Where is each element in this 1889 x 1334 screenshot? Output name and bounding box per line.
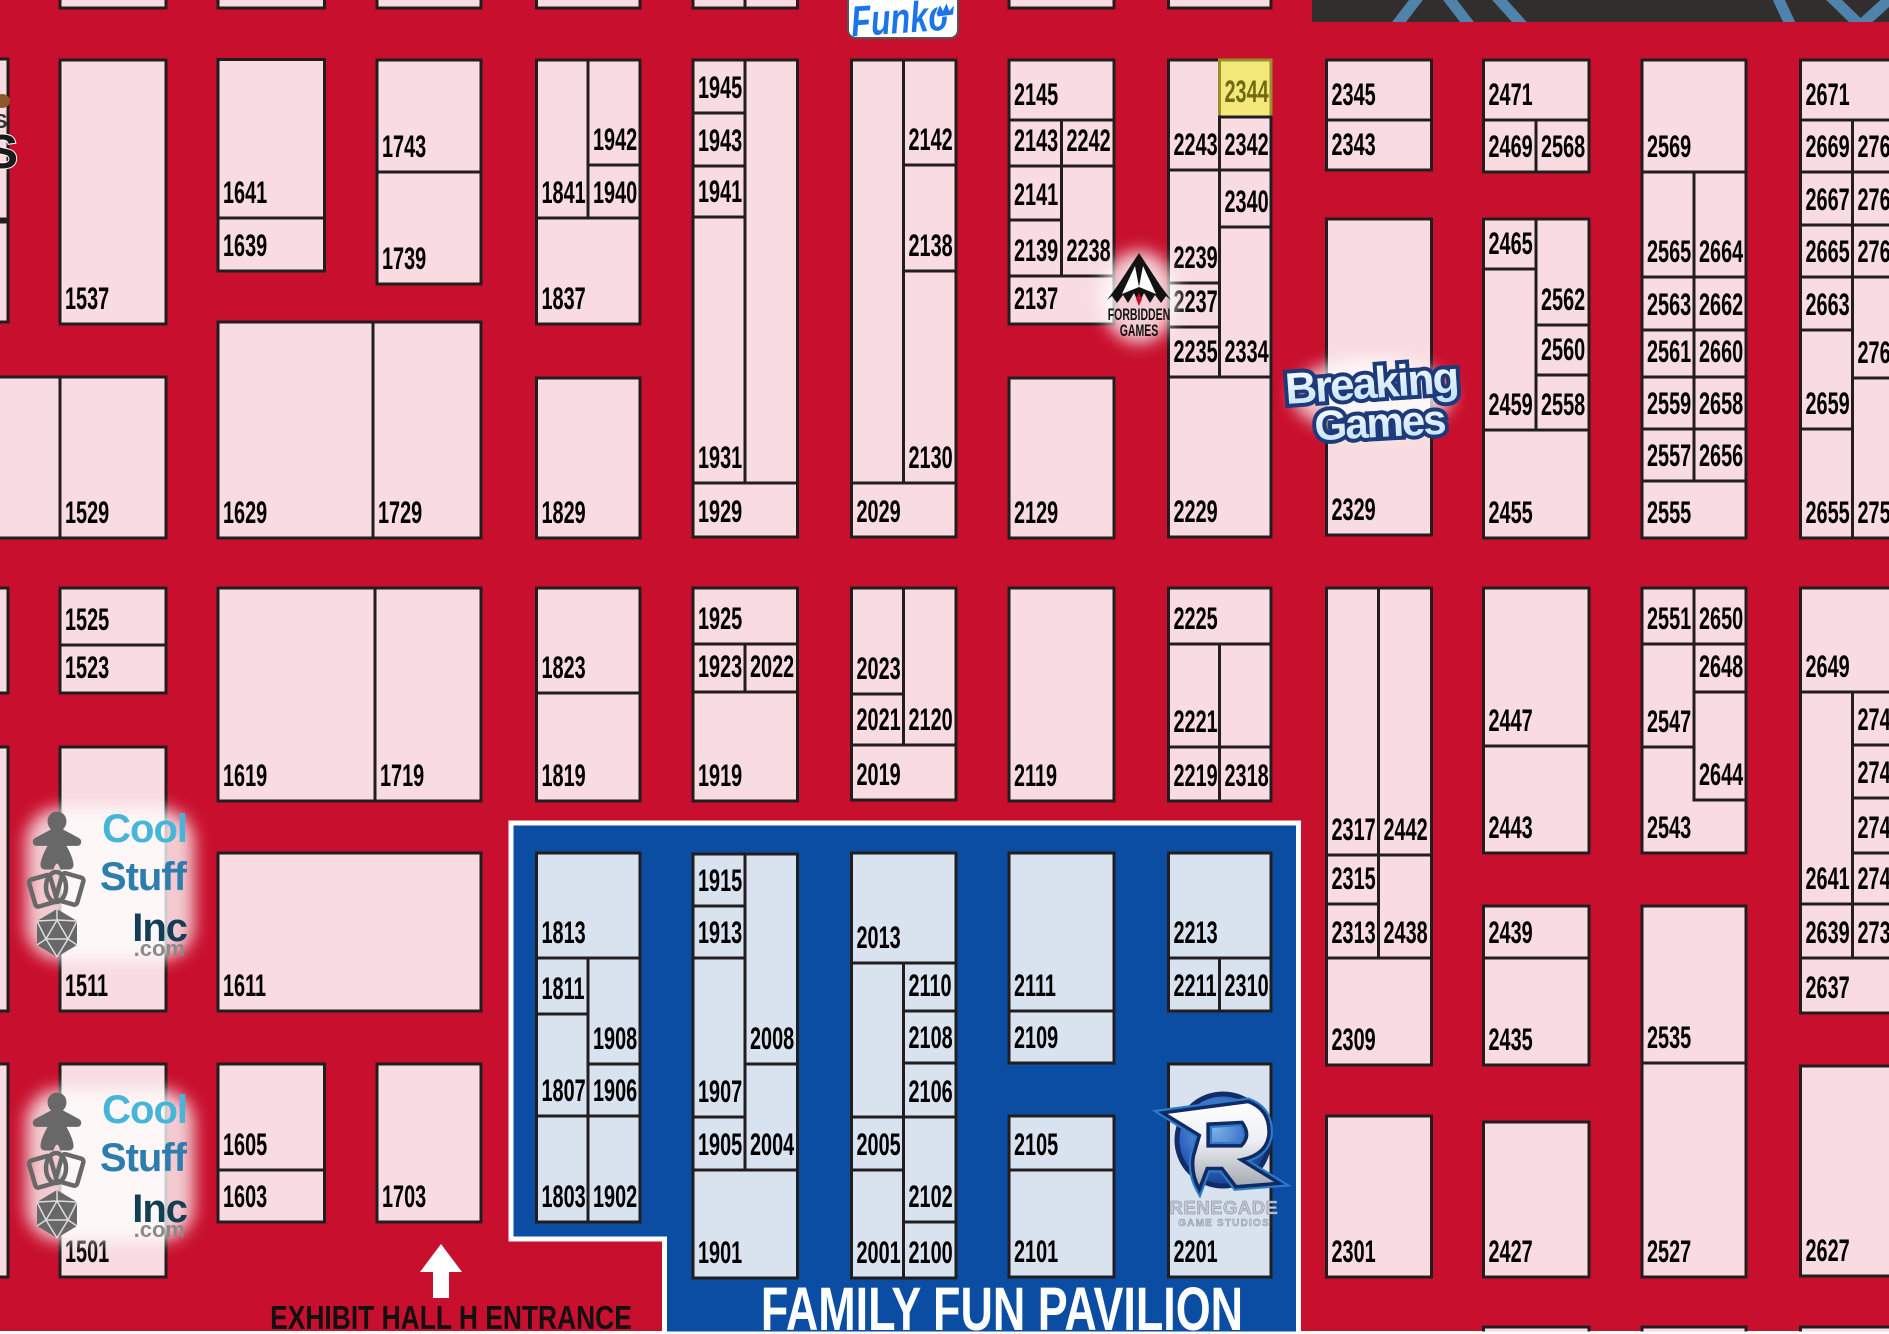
- svg-text:1629: 1629: [223, 494, 267, 530]
- svg-text:2746: 2746: [1858, 754, 1889, 790]
- svg-text:2013: 2013: [857, 919, 901, 955]
- svg-text:1829: 1829: [542, 494, 586, 530]
- svg-text:1523: 1523: [65, 649, 109, 685]
- svg-text:2138: 2138: [909, 227, 953, 263]
- svg-text:GAMES: GAMES: [1120, 320, 1159, 339]
- svg-text:2568: 2568: [1541, 128, 1585, 164]
- svg-text:FAMILY FUN PAVILION: FAMILY FUN PAVILION: [761, 1276, 1243, 1334]
- svg-text:2742: 2742: [1858, 860, 1889, 896]
- svg-text:1841: 1841: [542, 174, 586, 210]
- svg-text:2219: 2219: [1174, 757, 1218, 793]
- svg-text:2655: 2655: [1806, 494, 1850, 530]
- svg-text:2129: 2129: [1014, 494, 1058, 530]
- svg-text:2667: 2667: [1806, 181, 1850, 217]
- svg-text:1529: 1529: [65, 494, 109, 530]
- svg-text:2665: 2665: [1806, 233, 1850, 269]
- svg-text:RENEGADE: RENEGADE: [1170, 1197, 1279, 1218]
- svg-text:2560: 2560: [1541, 331, 1585, 367]
- svg-text:2318: 2318: [1225, 757, 1269, 793]
- svg-text:1941: 1941: [698, 173, 742, 209]
- svg-text:1902: 1902: [593, 1178, 637, 1214]
- svg-text:2658: 2658: [1699, 385, 1743, 421]
- svg-text:2108: 2108: [909, 1019, 953, 1055]
- svg-text:2243: 2243: [1174, 126, 1218, 162]
- svg-text:2201: 2201: [1174, 1233, 1218, 1269]
- svg-text:2313: 2313: [1332, 914, 1376, 950]
- svg-text:2663: 2663: [1806, 286, 1850, 322]
- svg-text:1641: 1641: [223, 174, 267, 210]
- svg-text:1942: 1942: [593, 121, 637, 157]
- svg-text:1729: 1729: [378, 494, 422, 530]
- svg-text:2221: 2221: [1174, 703, 1218, 739]
- svg-text:1639: 1639: [223, 227, 267, 263]
- svg-text:2744: 2744: [1858, 809, 1889, 845]
- svg-text:1803: 1803: [542, 1178, 586, 1214]
- svg-text:Stuff: Stuff: [100, 1136, 188, 1180]
- svg-text:2242: 2242: [1067, 122, 1111, 158]
- svg-text:2547: 2547: [1647, 703, 1691, 739]
- svg-text:2309: 2309: [1332, 1021, 1376, 1057]
- svg-text:2669: 2669: [1806, 128, 1850, 164]
- svg-text:2764: 2764: [1858, 233, 1889, 269]
- svg-text:2019: 2019: [857, 756, 901, 792]
- svg-text:1823: 1823: [542, 649, 586, 685]
- svg-text:2465: 2465: [1489, 225, 1533, 261]
- svg-text:2558: 2558: [1541, 386, 1585, 422]
- svg-text:2022: 2022: [750, 648, 794, 684]
- svg-text:1923: 1923: [698, 648, 742, 684]
- svg-text:1603: 1603: [223, 1178, 267, 1214]
- svg-text:2762: 2762: [1858, 334, 1889, 370]
- svg-text:1743: 1743: [382, 128, 426, 164]
- svg-text:2627: 2627: [1806, 1232, 1850, 1268]
- svg-text:2340: 2340: [1225, 183, 1269, 219]
- svg-text:2469: 2469: [1489, 128, 1533, 164]
- svg-text:2455: 2455: [1489, 494, 1533, 530]
- svg-text:2143: 2143: [1014, 122, 1058, 158]
- svg-text:1719: 1719: [380, 757, 424, 793]
- svg-text:1905: 1905: [698, 1126, 742, 1162]
- svg-text:1511: 1511: [65, 967, 108, 1003]
- svg-text:2527: 2527: [1647, 1233, 1691, 1269]
- svg-text:2660: 2660: [1699, 333, 1743, 369]
- svg-text:2563: 2563: [1647, 286, 1691, 322]
- svg-text:2569: 2569: [1647, 128, 1691, 164]
- svg-text:1811: 1811: [542, 970, 585, 1006]
- svg-text:2023: 2023: [857, 650, 901, 686]
- svg-text:1837: 1837: [542, 280, 586, 316]
- svg-text:2641: 2641: [1806, 860, 1850, 896]
- svg-text:2119: 2119: [1014, 757, 1057, 793]
- svg-text:2106: 2106: [909, 1073, 953, 1109]
- svg-text:2334: 2334: [1225, 333, 1269, 369]
- svg-text:1611: 1611: [223, 967, 266, 1003]
- svg-text:1919: 1919: [698, 757, 742, 793]
- svg-text:1929: 1929: [698, 493, 742, 529]
- svg-text:2435: 2435: [1489, 1021, 1533, 1057]
- svg-text:2111: 2111: [1014, 967, 1056, 1003]
- svg-text:1925: 1925: [698, 600, 742, 636]
- svg-text:2648: 2648: [1699, 648, 1743, 684]
- svg-text:2639: 2639: [1806, 914, 1850, 950]
- svg-text:1525: 1525: [65, 601, 109, 637]
- svg-text:1908: 1908: [593, 1020, 637, 1056]
- svg-text:2029: 2029: [857, 493, 901, 529]
- svg-text:2447: 2447: [1489, 702, 1533, 738]
- svg-text:2008: 2008: [750, 1020, 794, 1056]
- svg-text:1703: 1703: [382, 1178, 426, 1214]
- svg-text:.com: .com: [134, 936, 185, 961]
- svg-text:2738: 2738: [1858, 914, 1889, 950]
- svg-text:1943: 1943: [698, 122, 742, 158]
- svg-text:2238: 2238: [1067, 232, 1111, 268]
- svg-text:2459: 2459: [1489, 386, 1533, 422]
- svg-text:2748: 2748: [1858, 701, 1889, 737]
- svg-text:GAME STUDIOS: GAME STUDIOS: [1178, 1218, 1270, 1229]
- svg-text:2637: 2637: [1806, 969, 1850, 1005]
- svg-text:.com: .com: [134, 1217, 185, 1242]
- svg-text:2342: 2342: [1225, 126, 1269, 162]
- svg-text:2535: 2535: [1647, 1019, 1691, 1055]
- svg-text:1913: 1913: [698, 914, 742, 950]
- svg-text:1907: 1907: [698, 1073, 742, 1109]
- svg-text:1940: 1940: [593, 174, 637, 210]
- svg-text:2001: 2001: [857, 1234, 901, 1270]
- svg-text:2427: 2427: [1489, 1233, 1533, 1269]
- svg-text:2329: 2329: [1332, 491, 1376, 527]
- svg-text:2237: 2237: [1174, 283, 1218, 319]
- svg-text:2142: 2142: [909, 121, 953, 157]
- svg-text:2120: 2120: [909, 701, 953, 737]
- svg-text:2225: 2225: [1174, 600, 1218, 636]
- svg-text:2768: 2768: [1858, 128, 1889, 164]
- svg-text:2644: 2644: [1699, 756, 1743, 792]
- svg-text:2310: 2310: [1225, 967, 1269, 1003]
- svg-text:2555: 2555: [1647, 494, 1691, 530]
- svg-text:Stuff: Stuff: [100, 855, 188, 899]
- svg-text:2565: 2565: [1647, 233, 1691, 269]
- svg-text:1931: 1931: [698, 439, 742, 475]
- svg-text:2551: 2551: [1647, 600, 1691, 636]
- svg-text:2471: 2471: [1489, 76, 1533, 112]
- svg-text:1605: 1605: [223, 1126, 267, 1162]
- svg-text:2101: 2101: [1014, 1233, 1058, 1269]
- svg-text:2211: 2211: [1174, 967, 1217, 1003]
- svg-text:2137: 2137: [1014, 280, 1058, 316]
- svg-text:2562: 2562: [1541, 281, 1585, 317]
- svg-text:S: S: [0, 126, 18, 179]
- svg-text:2766: 2766: [1858, 181, 1889, 217]
- svg-text:1901: 1901: [698, 1234, 742, 1270]
- svg-text:2664: 2664: [1699, 233, 1743, 269]
- svg-text:Funko: Funko: [849, 0, 949, 46]
- svg-text:Cool: Cool: [102, 807, 187, 851]
- svg-text:Games: Games: [1313, 396, 1446, 450]
- svg-text:2004: 2004: [750, 1126, 794, 1162]
- svg-text:2671: 2671: [1806, 76, 1850, 112]
- svg-text:2235: 2235: [1174, 333, 1218, 369]
- svg-text:2543: 2543: [1647, 809, 1691, 845]
- svg-text:1537: 1537: [65, 280, 109, 316]
- svg-text:2557: 2557: [1647, 437, 1691, 473]
- svg-text:1813: 1813: [542, 914, 586, 950]
- svg-text:2229: 2229: [1174, 493, 1218, 529]
- svg-text:1819: 1819: [542, 757, 586, 793]
- svg-text:1739: 1739: [382, 240, 426, 276]
- svg-text:2213: 2213: [1174, 914, 1218, 950]
- svg-text:2343: 2343: [1332, 126, 1376, 162]
- svg-text:2344: 2344: [1225, 73, 1269, 109]
- svg-text:2102: 2102: [909, 1178, 953, 1214]
- svg-text:2239: 2239: [1174, 239, 1218, 275]
- svg-text:1945: 1945: [698, 69, 742, 105]
- svg-text:2559: 2559: [1647, 385, 1691, 421]
- svg-text:2662: 2662: [1699, 286, 1743, 322]
- svg-text:2659: 2659: [1806, 385, 1850, 421]
- svg-text:2301: 2301: [1332, 1233, 1376, 1269]
- svg-text:2345: 2345: [1332, 76, 1376, 112]
- svg-text:2649: 2649: [1806, 648, 1850, 684]
- svg-text:2110: 2110: [909, 967, 952, 1003]
- svg-text:2656: 2656: [1699, 437, 1743, 473]
- svg-text:2317: 2317: [1332, 811, 1376, 847]
- svg-text:2650: 2650: [1699, 600, 1743, 636]
- svg-text:2561: 2561: [1647, 333, 1691, 369]
- svg-text:2109: 2109: [1014, 1019, 1058, 1055]
- svg-text:2130: 2130: [909, 439, 953, 475]
- svg-text:2442: 2442: [1384, 811, 1428, 847]
- svg-text:2105: 2105: [1014, 1126, 1058, 1162]
- svg-text:2139: 2139: [1014, 232, 1058, 268]
- svg-text:2439: 2439: [1489, 914, 1533, 950]
- svg-text:2021: 2021: [857, 701, 901, 737]
- svg-text:2757: 2757: [1858, 494, 1889, 530]
- svg-text:2141: 2141: [1014, 176, 1058, 212]
- svg-text:1619: 1619: [223, 757, 267, 793]
- svg-text:2005: 2005: [857, 1126, 901, 1162]
- svg-text:2315: 2315: [1332, 860, 1376, 896]
- svg-text:2100: 2100: [909, 1234, 953, 1270]
- svg-text:1915: 1915: [698, 862, 742, 898]
- svg-text:EXHIBIT HALL H ENTRANCE: EXHIBIT HALL H ENTRANCE: [270, 1300, 632, 1334]
- svg-text:1807: 1807: [542, 1072, 586, 1108]
- svg-text:Cool: Cool: [102, 1088, 187, 1132]
- svg-text:2145: 2145: [1014, 76, 1058, 112]
- svg-text:2443: 2443: [1489, 809, 1533, 845]
- svg-text:2438: 2438: [1384, 914, 1428, 950]
- svg-text:1906: 1906: [593, 1072, 637, 1108]
